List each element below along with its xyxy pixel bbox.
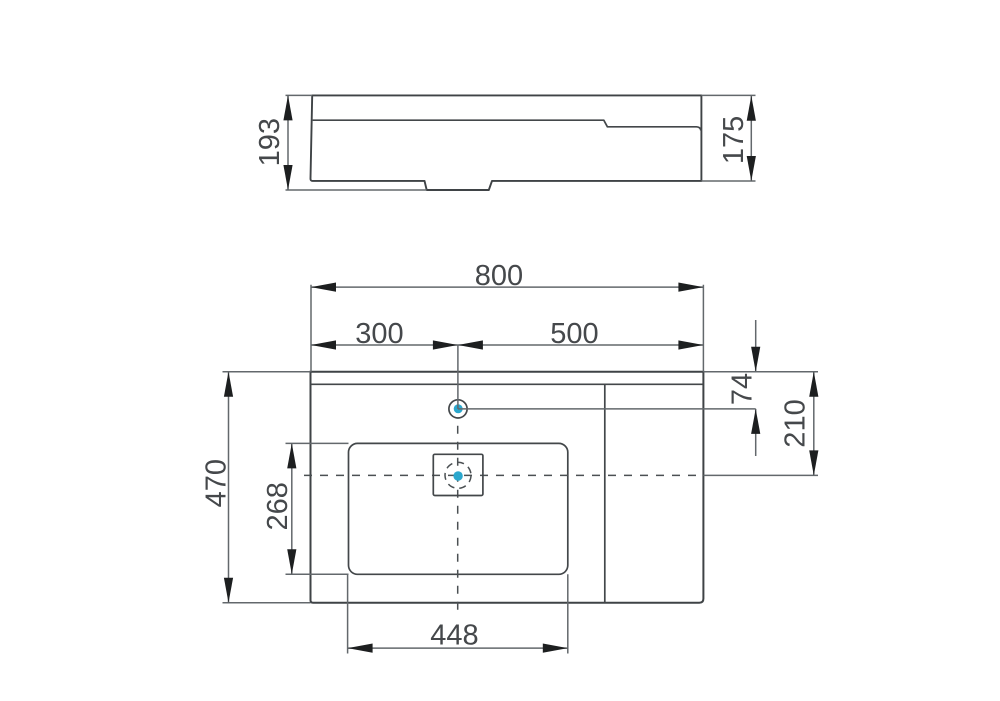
svg-text:500: 500	[550, 318, 598, 350]
svg-text:210: 210	[779, 399, 811, 447]
svg-text:268: 268	[262, 482, 294, 530]
svg-text:74: 74	[727, 373, 759, 405]
svg-text:193: 193	[254, 118, 286, 166]
svg-text:300: 300	[355, 318, 403, 350]
svg-text:175: 175	[718, 116, 750, 164]
svg-text:448: 448	[430, 620, 478, 652]
svg-text:800: 800	[475, 260, 523, 292]
svg-text:470: 470	[200, 459, 232, 507]
